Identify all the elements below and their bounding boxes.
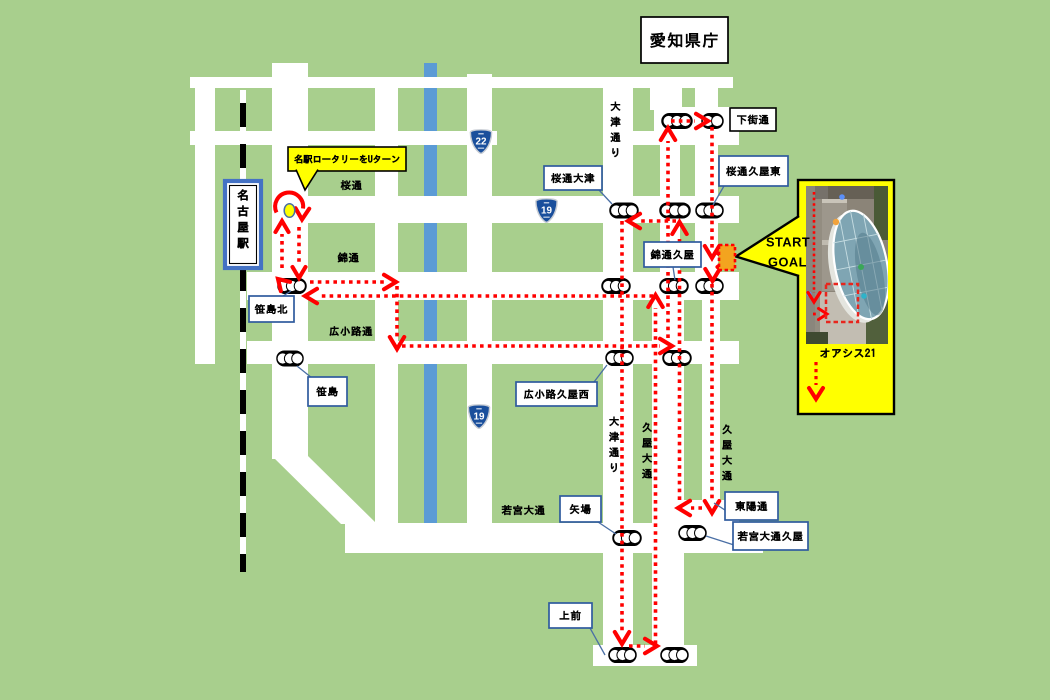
svg-text:22: 22 [475, 137, 487, 148]
svg-text:START: START [766, 235, 810, 250]
svg-text:GOAL: GOAL [768, 255, 807, 270]
svg-text:19: 19 [473, 412, 485, 423]
svg-text:19: 19 [541, 206, 553, 217]
